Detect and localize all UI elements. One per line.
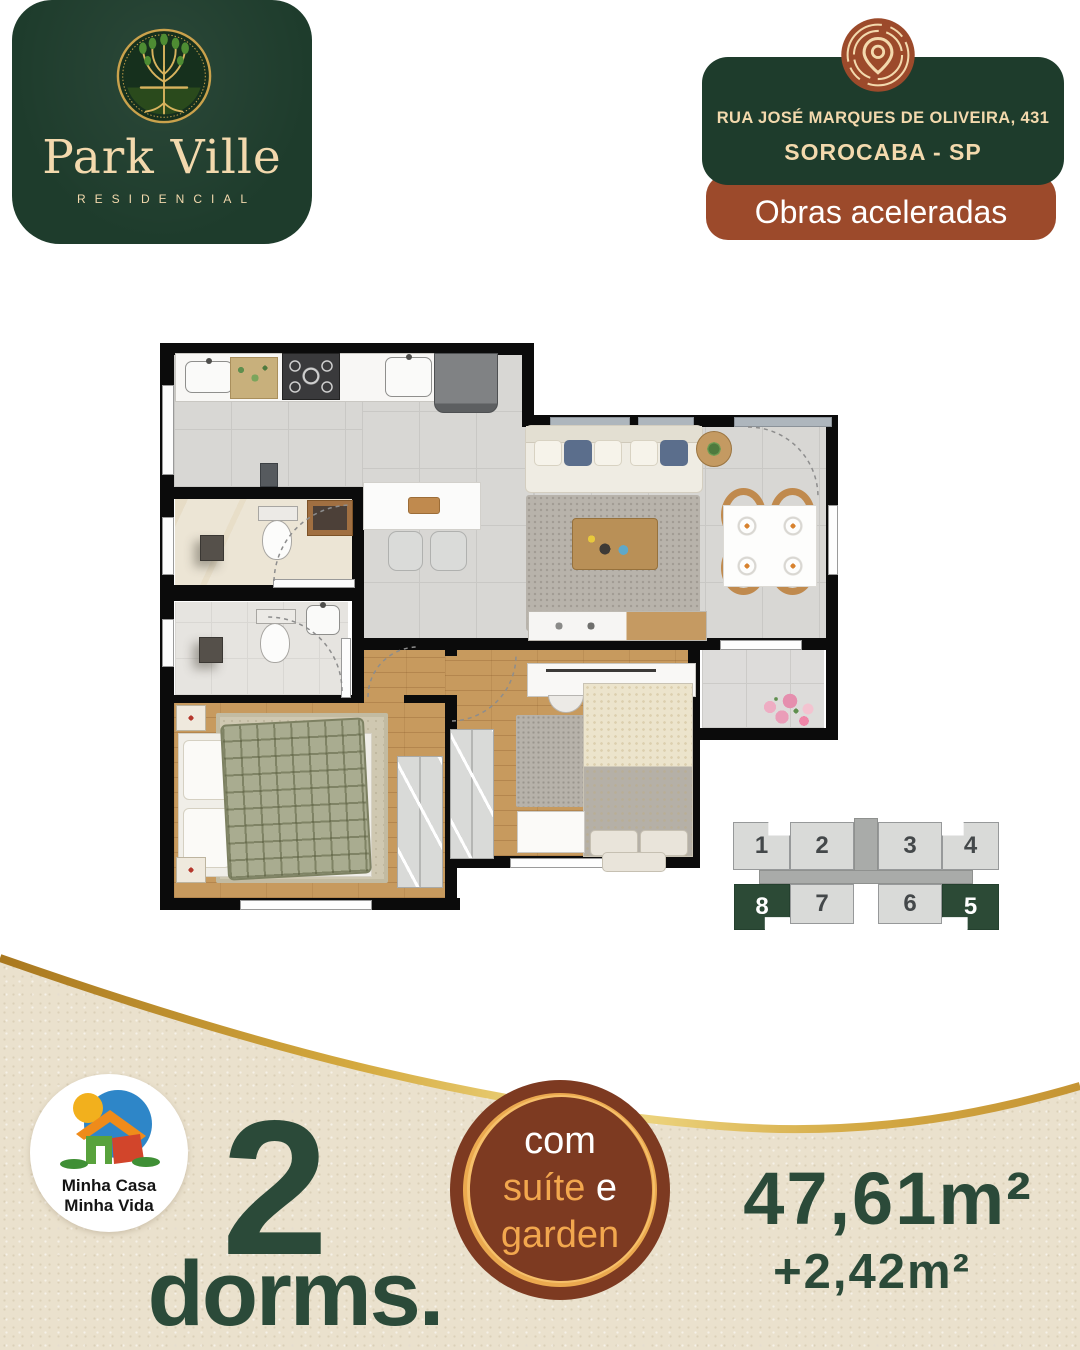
unit-number: 6 — [903, 890, 916, 918]
badge-text: com suíte e garden — [450, 1118, 670, 1259]
keyplan-corridor — [759, 870, 973, 884]
brand-subtitle: RESIDENCIAL — [12, 192, 312, 206]
suite-garden-badge: com suíte e garden — [450, 1080, 670, 1300]
keyplan-stair-core — [854, 818, 878, 872]
brand-name: Park Ville — [12, 130, 312, 185]
dorms-label: dorms. — [130, 1248, 460, 1340]
badge-word-garden: garden — [501, 1214, 619, 1256]
building-keyplan: 1 2 3 4 8 7 6 5 — [733, 818, 999, 932]
area-garden: +2,42m² — [682, 1244, 1062, 1300]
unit-number: 8 — [755, 893, 768, 921]
mcmv-line1: Minha Casa — [30, 1176, 188, 1196]
keyplan-unit-2: 2 — [790, 822, 854, 870]
map-pin-icon — [840, 17, 916, 93]
tree-medallion-icon — [116, 28, 212, 124]
keyplan-unit-5-highlighted: 5 — [942, 884, 999, 930]
mcmv-logo: Minha Casa Minha Vida — [30, 1074, 188, 1232]
mcmv-house-icon — [58, 1082, 160, 1178]
keyplan-unit-1: 1 — [733, 822, 790, 870]
unit-number: 1 — [755, 832, 768, 860]
status-banner-label: Obras aceleradas — [755, 194, 1008, 240]
unit-number: 3 — [903, 832, 916, 860]
keyplan-unit-4: 4 — [942, 822, 999, 870]
keyplan-unit-6: 6 — [878, 884, 942, 924]
mcmv-text: Minha Casa Minha Vida — [30, 1176, 188, 1216]
badge-word-com: com — [524, 1120, 596, 1162]
keyplan-unit-8-highlighted: 8 — [734, 884, 790, 930]
flyer-canvas: Park Ville RESIDENCIAL Obras aceleradas … — [0, 0, 1080, 1350]
unit-number: 7 — [815, 890, 828, 918]
mcmv-line2: Minha Vida — [30, 1196, 188, 1216]
address-line1: RUA JOSÉ MARQUES DE OLIVEIRA, 431 — [702, 109, 1064, 128]
brand-card: Park Ville RESIDENCIAL — [12, 0, 312, 244]
unit-number: 4 — [964, 832, 977, 860]
badge-word-suite: suíte — [503, 1167, 585, 1209]
unit-number: 5 — [964, 893, 977, 921]
unit-number: 2 — [815, 832, 828, 860]
address-line2: SOROCABA - SP — [702, 139, 1064, 166]
keyplan-unit-7: 7 — [790, 884, 854, 924]
badge-word-e: e — [596, 1167, 617, 1209]
keyplan-unit-3: 3 — [878, 822, 942, 870]
area-private: 47,61m² — [698, 1156, 1078, 1241]
